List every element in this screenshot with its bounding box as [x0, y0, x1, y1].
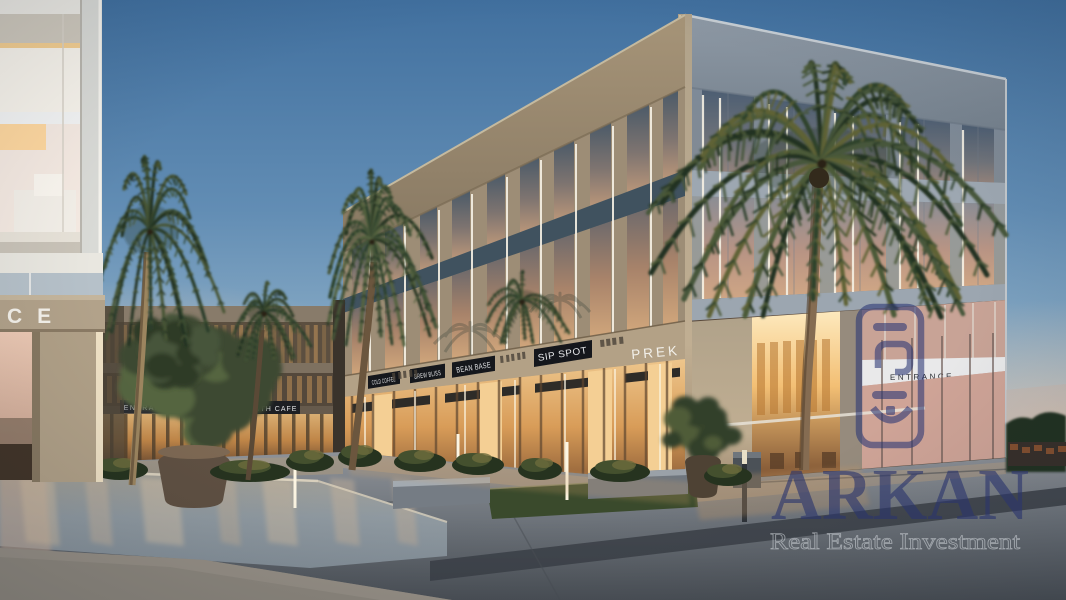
svg-text:Real Estate Investment: Real Estate Investment — [770, 529, 1021, 554]
svg-text:ARKAN: ARKAN — [771, 454, 1029, 535]
